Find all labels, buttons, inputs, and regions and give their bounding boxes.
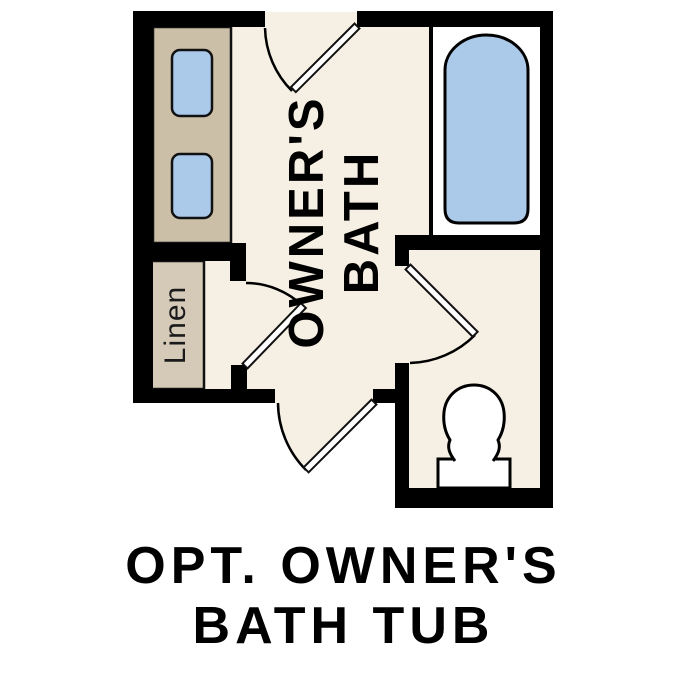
wall-left: [133, 11, 153, 403]
wall-hall-door-jamb-top: [230, 261, 246, 281]
tub-deck-edge-line: [429, 25, 433, 235]
wall-toilet-room-left: [395, 363, 409, 488]
toilet-symbol: [438, 385, 510, 488]
wall-top-right: [357, 11, 553, 27]
sink-symbol-bottom: [172, 154, 212, 218]
wall-right: [540, 11, 553, 508]
floor-top-doorway: [265, 12, 357, 28]
wall-toilet-room-bottom: [395, 488, 553, 508]
toilet-bowl: [444, 385, 505, 461]
wall-bottom-main: [133, 389, 275, 403]
bathtub-symbol: [445, 35, 528, 223]
sink-symbol-top: [172, 50, 212, 116]
wall-hall-door-jamb-bottom: [231, 365, 247, 389]
floorplan-page: OWNER'S BATH Linen OPT. OWNER'S BATH TUB: [0, 0, 687, 687]
wall-toilet-room-left-jamb: [395, 235, 409, 266]
room-label-owners-bath: OWNER'S BATH: [275, 52, 395, 392]
caption-line1: OPT. OWNER'S: [0, 536, 687, 596]
linen-closet-label: Linen: [160, 255, 192, 395]
wall-toilet-room-top: [395, 235, 553, 250]
room-label-line2: BATH: [335, 52, 390, 392]
room-label-line1: OWNER'S: [280, 52, 335, 392]
caption-line2: BATH TUB: [0, 596, 687, 656]
plan-caption: OPT. OWNER'S BATH TUB: [0, 536, 687, 656]
toilet-tank: [438, 459, 510, 488]
